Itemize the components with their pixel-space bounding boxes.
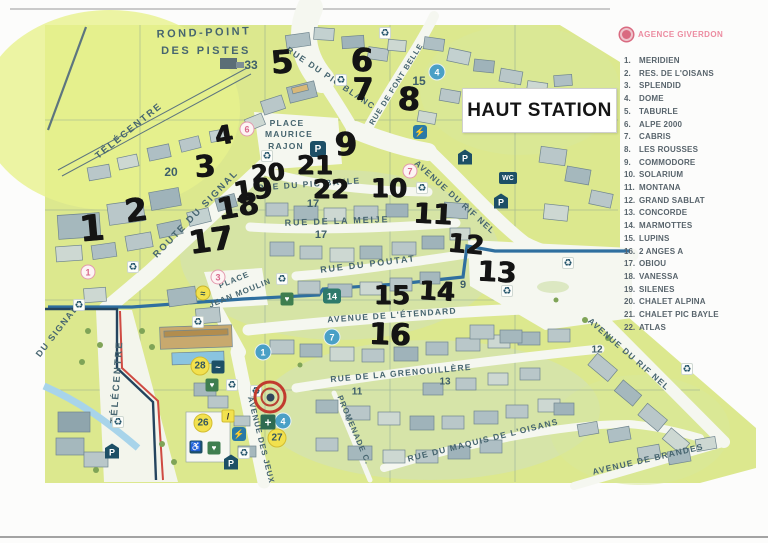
place-label-place: PLACE: [270, 118, 305, 128]
handwritten-number-5: 5: [269, 42, 294, 82]
haut-station-sign: HAUT STATION: [462, 88, 617, 133]
agency-logo-icon: [620, 28, 633, 41]
printed-number-9: 9: [460, 279, 466, 291]
recycling-icon: ♻: [112, 416, 124, 428]
recycling-icon: ♻: [335, 74, 347, 86]
ev-charging-icon: ⚡: [413, 125, 427, 139]
printed-number-12: 12: [591, 345, 602, 356]
legend-item: 16.2 ANGES A: [624, 246, 766, 259]
recycling-icon: ♻: [416, 182, 428, 194]
handwritten-number-1: 1: [78, 207, 107, 250]
green-marker-14: 14: [323, 289, 341, 304]
wc-icon: WC: [499, 172, 517, 184]
printed-number-33: 33: [244, 58, 257, 72]
yellow-marker-26: 26: [194, 414, 213, 433]
printed-number-20: 20: [164, 165, 177, 179]
plaza-pond: [537, 281, 569, 293]
printed-number-13: 13: [439, 377, 450, 388]
legend-item: 6.ALPE 2000: [624, 119, 766, 132]
blue-marker-7: 7: [324, 329, 341, 346]
pink-marker-6: 6: [240, 122, 255, 137]
legend-item: 2.RES. DE L'OISANS: [624, 68, 766, 81]
handwritten-number-15: 15: [374, 281, 410, 311]
recycling-icon: ♻: [379, 27, 391, 39]
legend-item: 13.CONCORDE: [624, 207, 766, 220]
legend-item: 10.SOLARIUM: [624, 169, 766, 182]
handwritten-number-10: 10: [371, 174, 407, 204]
handwritten-number-20: 20: [250, 158, 286, 189]
legend-item: 21.CHALET PIC BAYLE: [624, 309, 766, 322]
recycling-icon: ♻: [73, 299, 85, 311]
waterslide-icon: ~: [212, 361, 225, 374]
legend-item: 20.CHALET ALPINA: [624, 296, 766, 309]
wellness-icon: ♥: [208, 442, 221, 455]
wellness-icon: ♥: [281, 293, 294, 306]
legend-panel: AGENCE GIVERDON 1.MERIDIEN 2.RES. DE L'O…: [618, 28, 766, 334]
blue-marker-4b: 4: [275, 413, 292, 430]
legend-item: 4.DOME: [624, 93, 766, 106]
handwritten-number-8: 8: [397, 79, 421, 118]
legend-item: 12.GRAND SABLAT: [624, 195, 766, 208]
pink-marker-1: 1: [81, 265, 96, 280]
target-dot: [266, 393, 274, 401]
handwritten-number-13: 13: [477, 255, 518, 290]
skier-icon: /: [222, 410, 235, 423]
legend-item: 19.SILENES: [624, 284, 766, 297]
ski-school-icon: ≈: [196, 286, 211, 301]
printed-number-11: 11: [352, 387, 363, 398]
recycling-icon: ♻: [562, 257, 574, 269]
handwritten-number-11: 11: [413, 197, 454, 232]
recycling-icon: ♻: [276, 273, 288, 285]
legend-item: 3.SPLENDID: [624, 80, 766, 93]
legend-item: 22.ATLAS: [624, 322, 766, 335]
legend-item: 14.MARMOTTES: [624, 220, 766, 233]
legend-items: 1.MERIDIEN 2.RES. DE L'OISANS 3.SPLENDID…: [624, 55, 766, 334]
handwritten-number-3: 3: [193, 149, 217, 186]
blue-marker-4a: 4: [429, 64, 446, 81]
recycling-icon: ♻: [127, 261, 139, 273]
legend-item: 5.TABURLE: [624, 106, 766, 119]
ev-charging-icon: ⚡: [232, 427, 246, 441]
handwritten-number-14: 14: [418, 276, 456, 308]
target-inner-ring: [261, 388, 280, 407]
yellow-marker-28: 28: [191, 357, 210, 376]
legend-item: 8.LES ROUSSES: [624, 144, 766, 157]
handwritten-number-9: 9: [334, 124, 358, 163]
handwritten-number-7: 7: [353, 73, 374, 108]
scanned-map-page: ROND-POINT DES PISTES RUE DU PIC BLANC R…: [0, 0, 768, 543]
haut-station-title: HAUT STATION: [467, 100, 612, 122]
blue-marker-1: 1: [255, 344, 272, 361]
wheelchair-access-icon: ♿: [190, 441, 203, 454]
legend-item: 11.MONTANA: [624, 182, 766, 195]
agency-name: AGENCE GIVERDON: [638, 30, 723, 39]
recycling-icon: ♻: [226, 379, 238, 391]
recycling-icon: ♻: [238, 447, 250, 459]
street-label-des-pistes: DES PISTES: [161, 45, 251, 57]
destination-target-marker: [254, 381, 287, 414]
yellow-marker-27: 27: [268, 429, 287, 448]
recycling-icon: ♻: [192, 316, 204, 328]
place-label-rajon: RAJON: [268, 141, 304, 151]
legend-item: 7.CABRIS: [624, 131, 766, 144]
pink-marker-3: 3: [211, 270, 226, 285]
first-aid-icon: +: [261, 415, 276, 430]
legend-item: 17.OBIOU: [624, 258, 766, 271]
legend-item: 15.LUPINS: [624, 233, 766, 246]
place-label-maurice: MAURICE: [265, 129, 313, 139]
legend-item: 18.VANESSA: [624, 271, 766, 284]
wellness-icon: ♥: [206, 379, 219, 392]
legend-item: 9.COMMODORE: [624, 157, 766, 170]
handwritten-number-16: 16: [369, 317, 412, 353]
legend-header: AGENCE GIVERDON: [620, 28, 766, 41]
handwritten-number-22: 22: [313, 175, 349, 205]
legend-item: 1.MERIDIEN: [624, 55, 766, 68]
recycling-icon: ♻: [681, 363, 693, 375]
printed-number-17b: 17: [315, 229, 327, 241]
